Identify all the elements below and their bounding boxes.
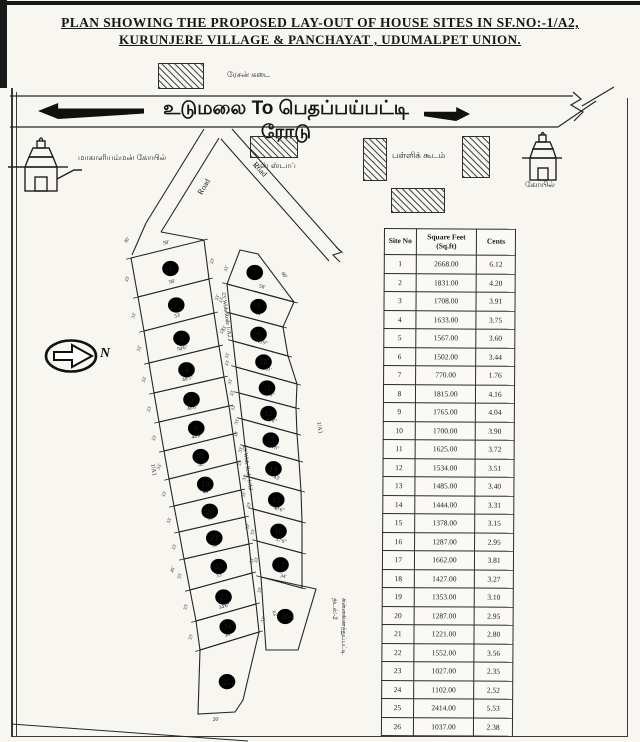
table-row: 21831.004.20 (384, 273, 515, 292)
table-row: 61502.003.44 (384, 347, 515, 366)
side-dim-label: 45' (170, 566, 176, 573)
table-row: 131485.003.40 (383, 476, 514, 495)
table-row: 41633.003.75 (384, 310, 515, 329)
cents-cell: 2.52 (474, 681, 513, 700)
sqft-cell: 1287.00 (414, 532, 475, 551)
cents-cell: 3.81 (475, 551, 514, 570)
plot-dim-label: 51' (264, 366, 272, 373)
table-row: 121534.003.51 (383, 458, 514, 477)
side-dim-label: 33' (183, 604, 189, 611)
site-no-cell: 7 (384, 366, 416, 385)
cents-cell: 3.27 (475, 570, 514, 589)
plot-number: 24 (224, 622, 232, 631)
plot-dim-label: 20' (213, 717, 220, 723)
table-row: 161287.002.95 (383, 532, 514, 551)
table-row: 91765.004.04 (383, 402, 514, 421)
table-row: 51567.003.60 (384, 329, 515, 348)
sqft-cell: 2414.00 (413, 699, 474, 718)
main-road-lines (10, 87, 614, 127)
side-dim-label: 33' (152, 435, 158, 442)
sqft-cell: 1662.00 (414, 551, 475, 570)
site-no-cell: 20 (382, 606, 414, 625)
side-dim-label: 33' (234, 418, 240, 425)
plot-dim-label: 36' (124, 237, 131, 245)
division-tick (278, 326, 287, 328)
side-dim-label: 33' (131, 312, 137, 319)
side-dim-label: 33' (245, 523, 251, 530)
plot-number: 2 (174, 301, 178, 310)
table-row: 151378.003.15 (383, 513, 514, 532)
cents-cell: 1.76 (476, 366, 515, 385)
cents-cell: 2.35 (474, 662, 513, 681)
south-boundary-label: சின்னகிணத்துப்பட்டி (340, 598, 346, 655)
plot-dim-label: 36' (211, 542, 218, 549)
site-no-cell: 19 (382, 587, 414, 606)
table-header: Cents (477, 229, 516, 255)
sqft-cell: 1625.00 (415, 440, 476, 459)
internal-road-label: 23' Wide Rode 1/A2 (241, 445, 253, 491)
table-row: 252414.005.53 (382, 698, 513, 717)
cents-cell: 3.10 (474, 588, 513, 607)
sqft-cell: 1700.00 (415, 421, 476, 440)
cents-cell: 2.95 (474, 607, 513, 626)
side-dim-label: 33' (177, 573, 183, 580)
survey-label: 1/A1 (149, 463, 157, 476)
side-dim-label: 33' (142, 376, 148, 383)
cents-cell: 3.31 (475, 496, 514, 515)
plot-number: 1 (169, 264, 173, 273)
sqft-cell: 1287.00 (414, 606, 475, 625)
side-dim-label: 33' (231, 404, 237, 411)
plot-dim-label: 38' (207, 515, 214, 522)
side-dim-label: 33' (225, 360, 231, 367)
site-no-cell: 12 (383, 458, 415, 477)
plot-dim-label: 50'6" (177, 344, 189, 352)
plot-dim-label: 45'9" (256, 338, 268, 347)
cents-cell: 3.44 (476, 348, 515, 367)
plot-number: 3 (180, 334, 184, 343)
plot-number: 6 (194, 424, 198, 433)
side-dim-label: 33' (125, 276, 131, 283)
site-no-cell: 10 (383, 421, 415, 440)
site-no-cell: 4 (384, 310, 416, 329)
plot-number: 7 (253, 268, 257, 277)
cents-cell: 3.15 (475, 514, 514, 533)
division-tick (126, 257, 135, 259)
sqft-cell: 1353.00 (414, 588, 475, 607)
table-row: 111625.003.72 (383, 439, 514, 458)
table-row: 201287.002.95 (382, 606, 513, 625)
plot-number: 23 (220, 593, 228, 602)
cents-cell: 3.91 (476, 292, 515, 311)
site-no-cell: 16 (383, 532, 415, 551)
table-row: 241102.002.52 (382, 680, 513, 699)
site-no-cell: 13 (383, 476, 415, 495)
site-no-cell: 21 (382, 624, 414, 643)
table-row: 101700.003.90 (383, 421, 514, 440)
site-no-cell: 25 (382, 698, 414, 717)
side-dim-label: 33' (210, 258, 216, 265)
side-dim-label: 33' (157, 463, 163, 470)
side-dim-label: 33' (228, 378, 234, 385)
plot-number: 16 (275, 527, 283, 536)
plot-dim-label: 48'5" (182, 375, 194, 383)
sqft-cell: 1708.00 (416, 292, 477, 311)
sqft-cell: 1485.00 (415, 477, 476, 496)
table-row: 141444.003.31 (383, 495, 514, 514)
page-edge-line (11, 724, 248, 741)
cents-cell: 6.12 (476, 255, 515, 274)
plot-boundary (198, 632, 259, 714)
site-no-cell: 23 (382, 661, 414, 680)
cents-cell: 4.04 (476, 403, 515, 422)
side-dim-label: 33' (137, 345, 143, 352)
plot-number: 17 (277, 560, 285, 569)
plot-number: 22 (215, 562, 223, 571)
plot-number: 5 (190, 395, 194, 404)
side-dim-label: 33' (162, 491, 168, 498)
table-row: 261037.002.38 (381, 717, 512, 736)
table-row: 171662.003.81 (382, 550, 513, 569)
cents-cell: 3.40 (475, 477, 514, 496)
sqft-cell: 1427.00 (414, 569, 475, 588)
sqft-cell: 770.00 (415, 366, 476, 385)
site-no-cell: 9 (383, 402, 415, 421)
site-no-cell: 18 (382, 569, 414, 588)
sqft-cell: 1027.00 (413, 662, 474, 681)
cents-cell: 3.56 (474, 644, 513, 663)
sqft-cell: 1534.00 (415, 458, 476, 477)
table-row: 191353.003.10 (382, 587, 513, 606)
cents-cell: 4.20 (476, 274, 515, 293)
south-boundary-label: திடல்:-2 (331, 598, 337, 620)
site-no-cell: 5 (384, 329, 416, 348)
site-no-cell: 22 (382, 643, 414, 662)
table-row: 211221.002.80 (382, 624, 513, 643)
plot-number: 15 (272, 495, 280, 504)
plot-dim-label: 37'6" (275, 537, 287, 546)
table-row: 181427.003.27 (382, 569, 513, 588)
site-no-cell: 1 (384, 255, 416, 274)
table-header: Site No (384, 229, 416, 255)
table-row: 81815.004.16 (383, 384, 514, 403)
plot-number: 25 (223, 677, 231, 686)
side-dim-label: 33' (257, 587, 263, 594)
plot-dim-label: 43' (273, 474, 281, 481)
side-dim-label: 33' (230, 390, 236, 397)
plot-number: 14 (270, 464, 278, 473)
plot-dim-label: 58' (168, 278, 176, 285)
plot-dim-label: 44' (254, 310, 262, 317)
site-no-cell: 11 (383, 439, 415, 458)
site-no-cell: 24 (382, 680, 414, 699)
cents-cell: 2.38 (474, 718, 513, 737)
road-label: Road (196, 177, 212, 196)
sqft-cell: 1831.00 (416, 273, 477, 292)
plot-dim-label: 58' (162, 240, 170, 247)
side-dim-label: 33' (241, 491, 247, 498)
side-dim-label: 33' (225, 352, 231, 359)
plot-dim-label: 53' (174, 312, 182, 319)
plot-dim-label: 56' (258, 283, 266, 290)
table-row: 221552.003.56 (382, 643, 513, 662)
side-dim-label: 33' (167, 517, 173, 524)
site-no-cell: 17 (382, 550, 414, 569)
side-dim-label: 33' (172, 544, 178, 551)
table-header: Square Feet(Sq.ft) (416, 229, 477, 255)
table-row: 31708.003.91 (384, 292, 515, 311)
sqft-cell: 2668.00 (416, 255, 477, 274)
sqft-cell: 1567.00 (416, 329, 477, 348)
table-row: 231027.002.35 (382, 661, 513, 680)
side-dim-label: 33' (224, 265, 230, 272)
plot-dim-label: 44'6" (267, 443, 279, 452)
sqft-cell: 1633.00 (416, 310, 477, 329)
table-row: 12668.006.12 (384, 255, 515, 274)
sqft-cell: 1815.00 (415, 384, 476, 403)
cents-cell: 4.16 (476, 385, 515, 404)
plot-layout-map: 158'33'33'258'33'33'353'33'33'450'6"33'3… (0, 0, 640, 742)
site-no-cell: 14 (383, 495, 415, 514)
plot-number: 4 (185, 365, 189, 374)
sqft-cell: 1221.00 (414, 625, 475, 644)
road-break-icon-2 (333, 247, 342, 262)
sqft-cell: 1552.00 (414, 643, 475, 662)
side-dim-label: 33' (188, 634, 194, 641)
site-no-cell: 3 (384, 292, 416, 311)
survey-label: 1/A1 (315, 421, 323, 434)
sqft-cell: 1765.00 (415, 403, 476, 422)
site-area-table: Site NoSquare Feet(Sq.ft)Cents 12668.006… (381, 228, 516, 737)
sqft-cell: 1378.00 (414, 514, 475, 533)
plot-dim-label: 46'6" (187, 404, 199, 412)
cents-cell: 3.60 (476, 329, 515, 348)
division-tick (222, 283, 231, 285)
site-no-cell: 26 (381, 717, 413, 736)
cents-cell: 3.75 (476, 311, 515, 330)
plot-dim-label: 60' (280, 271, 289, 280)
cents-cell: 2.95 (475, 533, 514, 552)
sqft-cell: 1444.00 (414, 495, 475, 514)
cents-cell: 5.53 (474, 699, 513, 718)
plot-dim-label: 40'6" (273, 505, 285, 514)
side-dim-label: 33' (237, 460, 243, 467)
scanned-plan-document: PLAN SHOWING THE PROPOSED LAY-OUT OF HOU… (0, 0, 640, 742)
side-dim-label: 33' (234, 431, 240, 438)
sqft-cell: 1502.00 (415, 347, 476, 366)
sqft-cell: 1037.00 (413, 717, 474, 736)
cents-cell: 3.51 (475, 459, 514, 478)
sqft-cell: 1102.00 (413, 680, 474, 699)
side-dim-label: 33' (147, 406, 153, 413)
cents-cell: 3.72 (475, 440, 514, 459)
plot-number: 18 (197, 452, 205, 461)
table-row: 7770.001.76 (384, 366, 515, 385)
cents-cell: 2.80 (474, 625, 513, 644)
side-dim-label: 63' (270, 610, 277, 617)
site-no-cell: 8 (383, 384, 415, 403)
site-no-cell: 15 (383, 513, 415, 532)
site-no-cell: 2 (384, 273, 416, 292)
plot-dim-label: 34' (279, 573, 287, 580)
cents-cell: 3.90 (475, 422, 514, 441)
site-no-cell: 6 (384, 347, 416, 366)
plot-dim-label: 44'6" (191, 432, 203, 440)
